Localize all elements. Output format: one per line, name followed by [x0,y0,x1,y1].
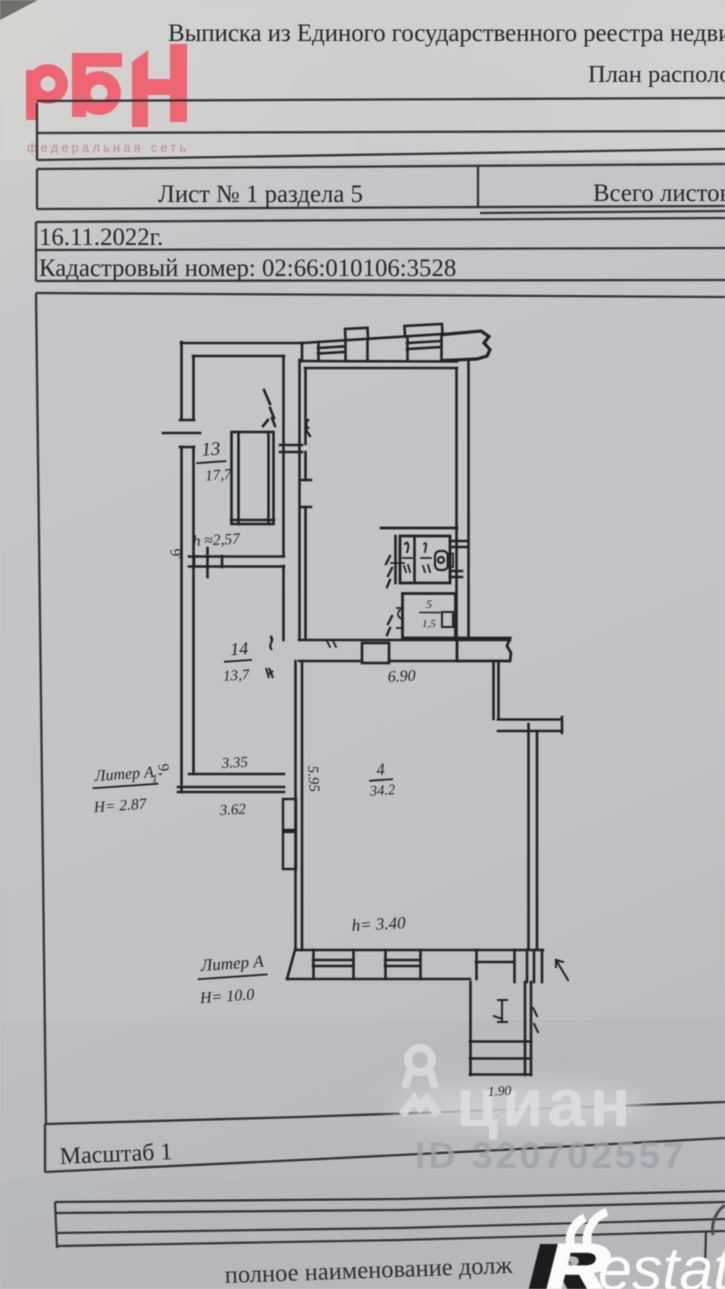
svg-text:3.62: 3.62 [218,802,247,819]
svg-text:13: 13 [201,438,221,460]
svg-text:estate: estate [598,1235,725,1289]
svg-text:16.11.2022г.: 16.11.2022г. [39,224,163,251]
svg-text:13,7: 13,7 [223,667,252,685]
svg-text:14: 14 [230,638,249,659]
svg-text:5: 5 [426,597,432,611]
svg-text:6.90: 6.90 [387,667,416,685]
svg-text:Кадастровый номер: 02:66:01010: Кадастровый номер: 02:66:010106:3528 [39,255,456,282]
svg-text:циан: циан [456,1065,635,1141]
svg-text:Масштаб 1: Масштаб 1 [59,1139,173,1170]
svg-text:План располож: План располож [588,61,725,88]
svg-text:h= 3.40: h= 3.40 [351,913,406,935]
svg-text:17,7: 17,7 [205,467,234,485]
svg-text:5.95: 5.95 [304,765,322,793]
svg-text:ID 320702557: ID 320702557 [415,1134,687,1176]
svg-text:34.2: 34.2 [368,782,395,800]
svg-text:Лист № 1 раздела 5: Лист № 1 раздела 5 [158,181,363,208]
svg-text:3.35: 3.35 [220,755,249,772]
svg-text:1.90: 1.90 [487,1083,512,1099]
svg-text:Выписка из Единого государстве: Выписка из Единого государственного реес… [168,20,725,47]
svg-text:1,5: 1,5 [422,618,436,630]
svg-text:федеральная сеть: федеральная сеть [27,141,189,155]
svg-text:Всего листов: Всего листов [593,180,725,207]
svg-text:h ≈2,57: h ≈2,57 [192,530,241,550]
